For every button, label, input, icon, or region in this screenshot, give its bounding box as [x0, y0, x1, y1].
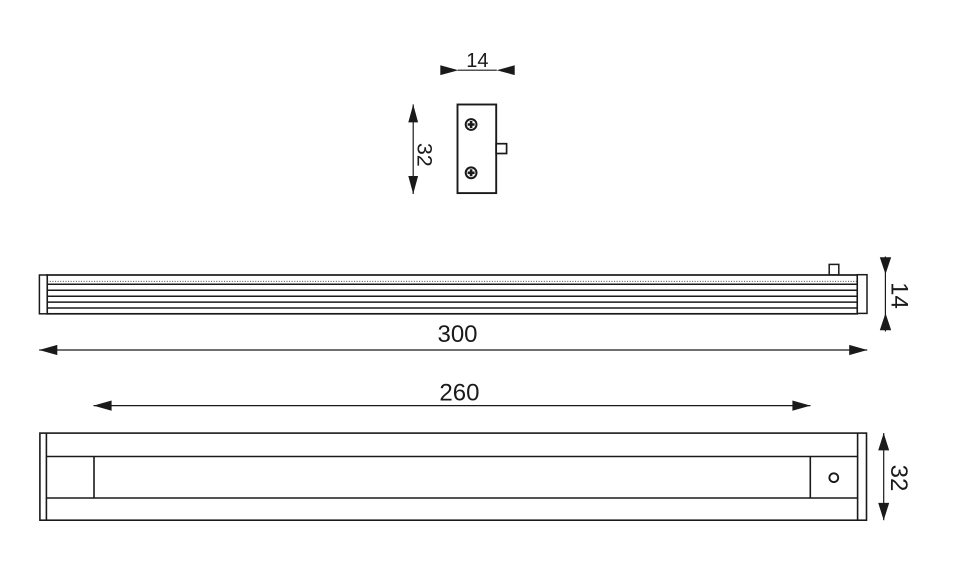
svg-text:32: 32	[412, 143, 436, 167]
svg-text:14: 14	[466, 50, 488, 72]
svg-text:260: 260	[439, 379, 479, 406]
svg-text:300: 300	[437, 321, 477, 348]
svg-text:14: 14	[886, 282, 913, 309]
svg-text:32: 32	[885, 465, 912, 492]
